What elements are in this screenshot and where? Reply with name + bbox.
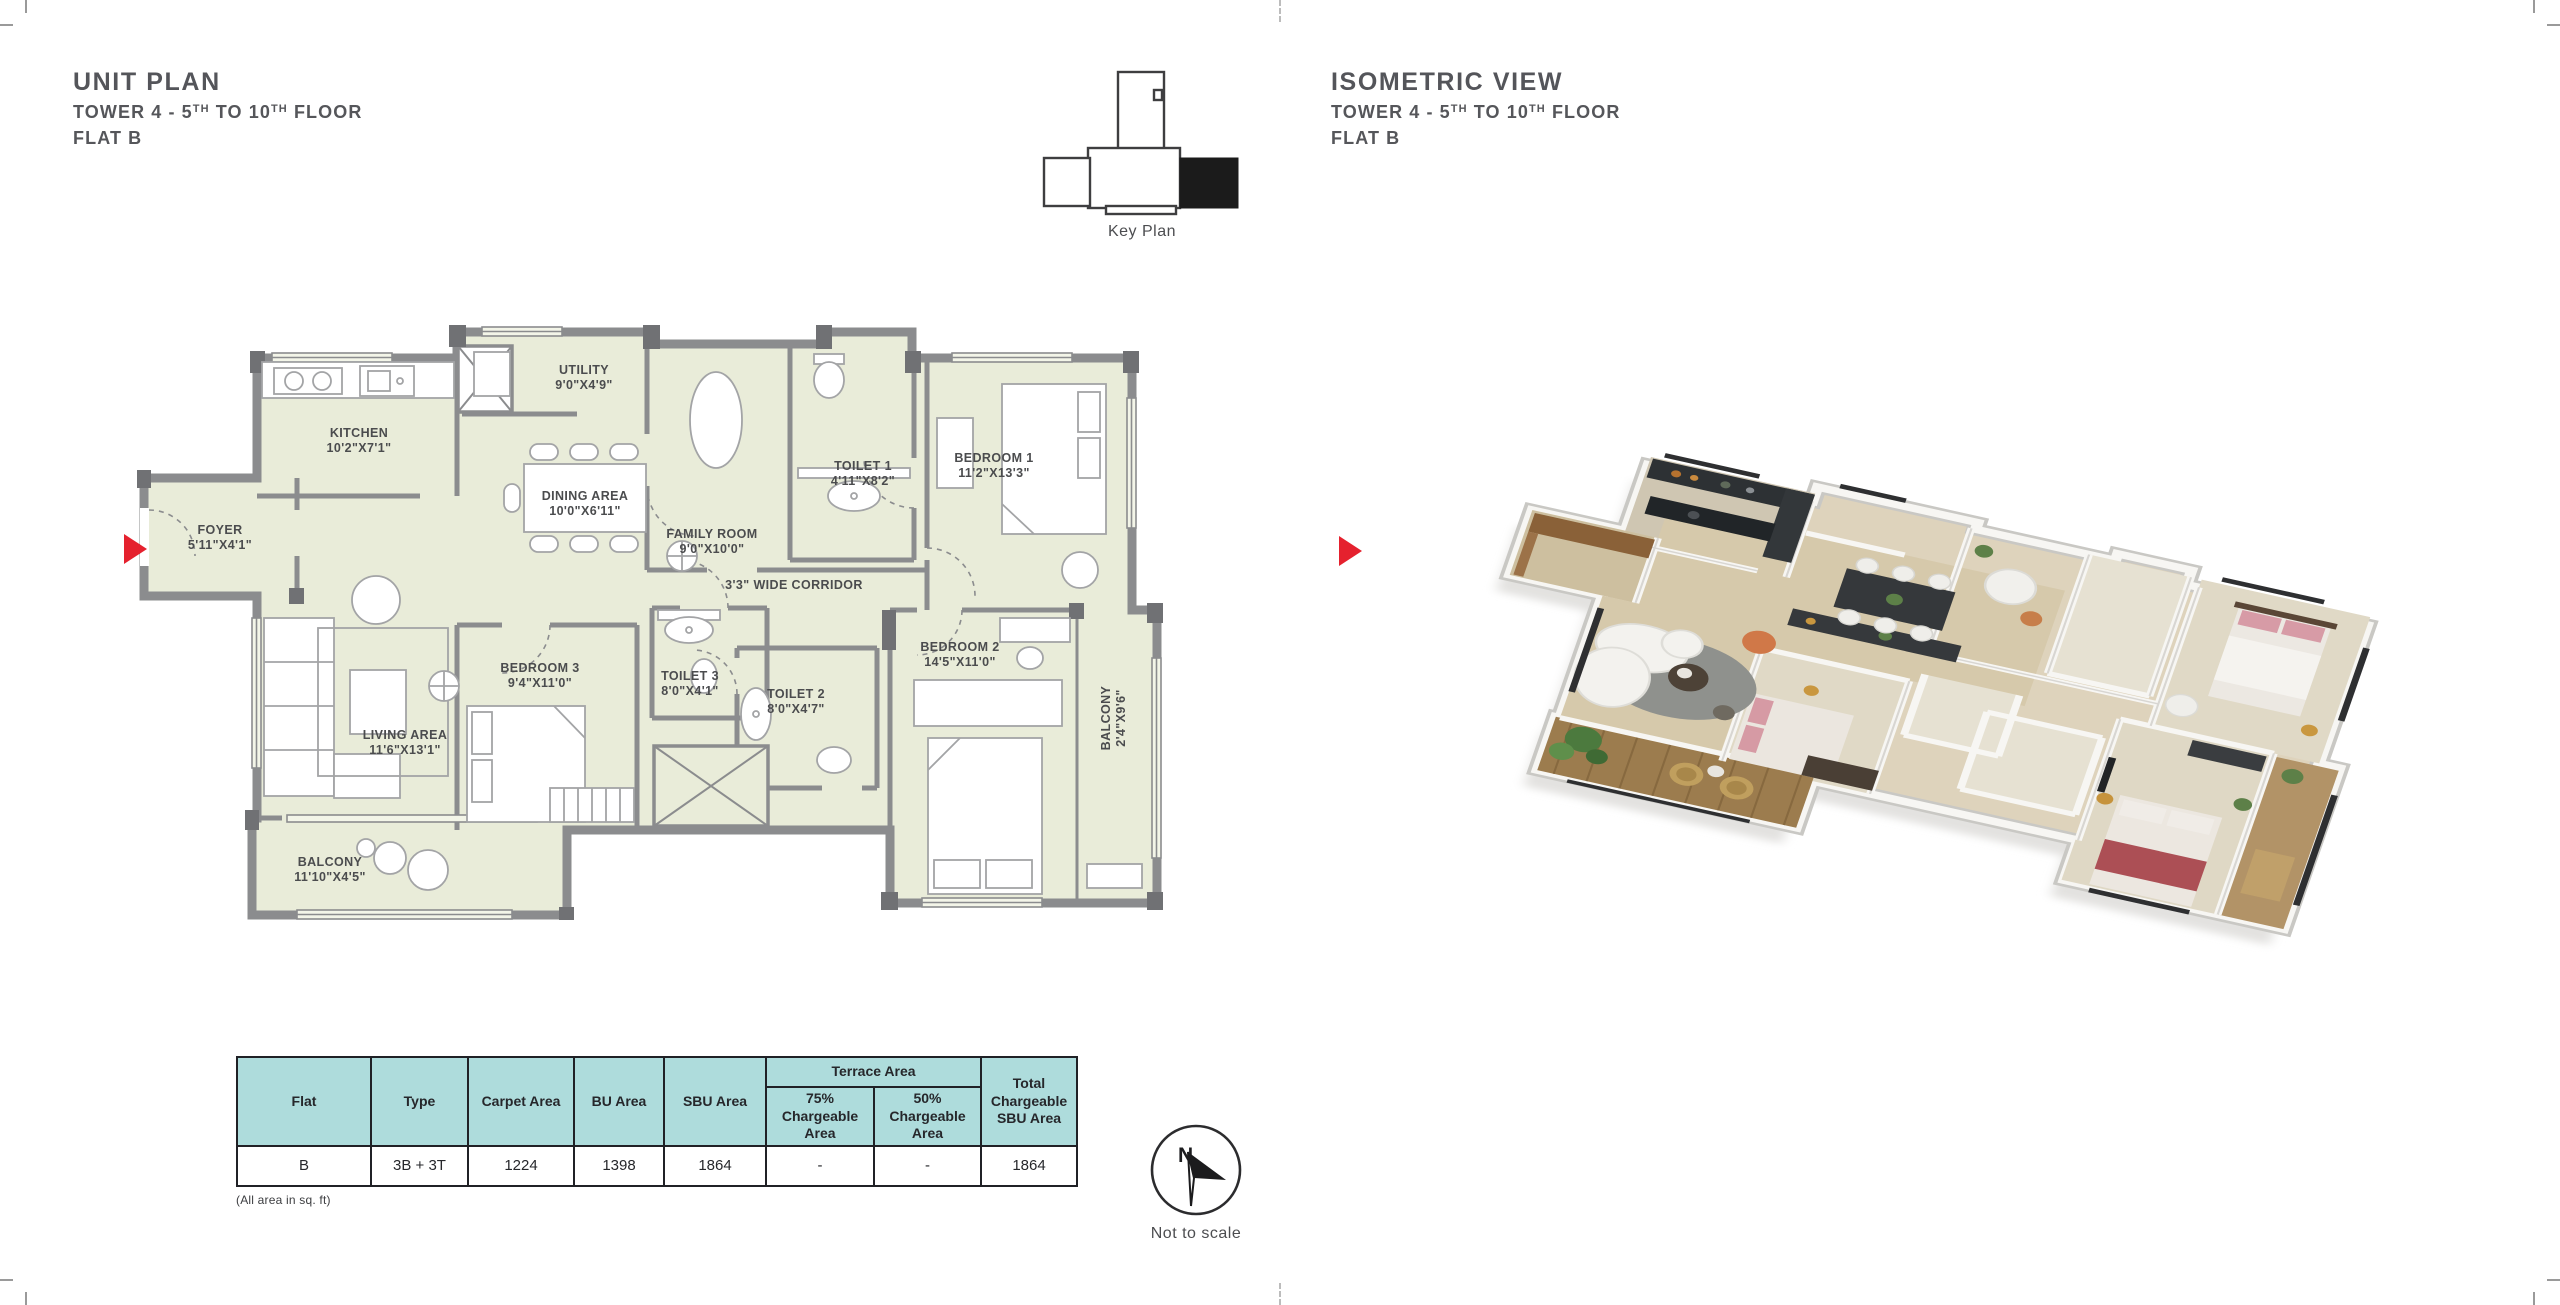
crop-mark: [2533, 1292, 2535, 1305]
isometric-title-block: ISOMETRIC VIEW TOWER 4 - 5TH TO 10TH FLO…: [1331, 68, 1620, 149]
crop-mark: [25, 1292, 27, 1305]
not-to-scale-note: Not to scale: [1146, 1225, 1246, 1243]
room-size: 9'4"X11'0": [508, 676, 572, 690]
col-header-carpet: Carpet Area: [468, 1057, 574, 1146]
isometric-flat: FLAT B: [1331, 128, 1620, 149]
crop-mark: [0, 1279, 13, 1281]
area-table: Flat Type Carpet Area BU Area SBU Area T…: [236, 1056, 1078, 1187]
room-size: 11'2"X13'3": [958, 466, 1030, 480]
room-size: 10'2"X7'1": [327, 441, 392, 455]
col-header-bu: BU Area: [574, 1057, 664, 1146]
col-header-flat: Flat: [237, 1057, 371, 1146]
crop-mark: [2533, 0, 2535, 13]
key-plan-drawing: [1030, 66, 1254, 218]
room-size: 14'5"X11'0": [924, 655, 996, 669]
room-size: 11'10"X4'5": [294, 870, 366, 884]
room-size: 8'0"X4'7": [767, 702, 825, 716]
cell-t75: -: [766, 1146, 874, 1186]
room-size: 4'11"X8'2": [831, 474, 895, 488]
cell-carpet: 1224: [468, 1146, 574, 1186]
crop-mark: [0, 24, 13, 26]
room-size: 8'0"X4'1": [661, 684, 719, 698]
cell-sbu: 1864: [664, 1146, 766, 1186]
room-label: BEDROOM 3: [500, 661, 579, 675]
isometric-subtitle: TOWER 4 - 5TH TO 10TH FLOOR: [1331, 102, 1620, 123]
col-header-terrace: Terrace Area: [766, 1057, 981, 1087]
room-size: 2'4"X9'6": [1114, 689, 1128, 747]
col-header-sbu: SBU Area: [664, 1057, 766, 1146]
col-header-total: Total Chargeable SBU Area: [981, 1057, 1077, 1146]
key-plan: Key Plan: [1030, 66, 1254, 241]
corridor-label: 3'3" WIDE CORRIDOR: [725, 578, 863, 592]
key-plan-highlight-flat: [1180, 158, 1238, 208]
col-header-75-chargeable: 75% Chargeable Area: [766, 1087, 874, 1146]
cell-total: 1864: [981, 1146, 1077, 1186]
page-title: UNIT PLAN: [73, 68, 362, 97]
room-size: 9'0"X4'9": [555, 378, 613, 392]
room-label: FOYER: [197, 523, 242, 537]
isometric-view-drawing: [1335, 330, 2465, 975]
entry-arrow-icon: [1339, 536, 1362, 566]
room-label: BEDROOM 2: [920, 640, 999, 654]
cell-type: 3B + 3T: [371, 1146, 468, 1186]
room-size: 5'11"X4'1": [188, 538, 252, 552]
room-label: KITCHEN: [330, 426, 388, 440]
compass: N Not to scale: [1146, 1120, 1246, 1243]
col-header-50-chargeable: 50% Chargeable Area: [874, 1087, 981, 1146]
unit-plan-title-block: UNIT PLAN TOWER 4 - 5TH TO 10TH FLOOR FL…: [73, 68, 362, 149]
room-label: BALCONY: [298, 855, 363, 869]
room-size: 10'0"X6'11": [549, 504, 621, 518]
table-row: B 3B + 3T 1224 1398 1864 - - 1864: [237, 1146, 1077, 1186]
brochure-page: { "unit_panel": { "title": "UNIT PLAN", …: [0, 0, 2560, 1305]
isometric-title: ISOMETRIC VIEW: [1331, 68, 1620, 97]
room-label: BALCONY: [1099, 685, 1113, 750]
room-size: 9'0"X10'0": [680, 542, 745, 556]
area-note: (All area in sq. ft): [236, 1193, 1076, 1207]
cell-t50: -: [874, 1146, 981, 1186]
room-label: TOILET 2: [767, 687, 825, 701]
unit-plan-drawing: FOYER 5'11"X4'1" KITCHEN 10'2"X7'1" UTIL…: [122, 318, 1167, 920]
center-fold-mark: [1279, 0, 1281, 22]
cell-bu: 1398: [574, 1146, 664, 1186]
room-label: FAMILY ROOM: [666, 527, 757, 541]
compass-icon: N: [1146, 1120, 1246, 1220]
col-header-type: Type: [371, 1057, 468, 1146]
unit-plan-subtitle: TOWER 4 - 5TH TO 10TH FLOOR: [73, 102, 362, 123]
crop-mark: [25, 0, 27, 13]
room-label: UTILITY: [559, 363, 609, 377]
key-plan-label: Key Plan: [1030, 223, 1254, 241]
room-label: TOILET 3: [661, 669, 719, 683]
crop-mark: [2547, 24, 2560, 26]
crop-mark: [2547, 1279, 2560, 1281]
room-label: BEDROOM 1: [954, 451, 1033, 465]
area-table-block: Flat Type Carpet Area BU Area SBU Area T…: [236, 1056, 1076, 1207]
room-label: LIVING AREA: [363, 728, 448, 742]
cell-flat: B: [237, 1146, 371, 1186]
unit-plan-flat: FLAT B: [73, 128, 362, 149]
room-label: DINING AREA: [542, 489, 629, 503]
room-size: 11'6"X13'1": [369, 743, 441, 757]
room-label: TOILET 1: [834, 459, 892, 473]
center-fold-mark: [1279, 1283, 1281, 1305]
